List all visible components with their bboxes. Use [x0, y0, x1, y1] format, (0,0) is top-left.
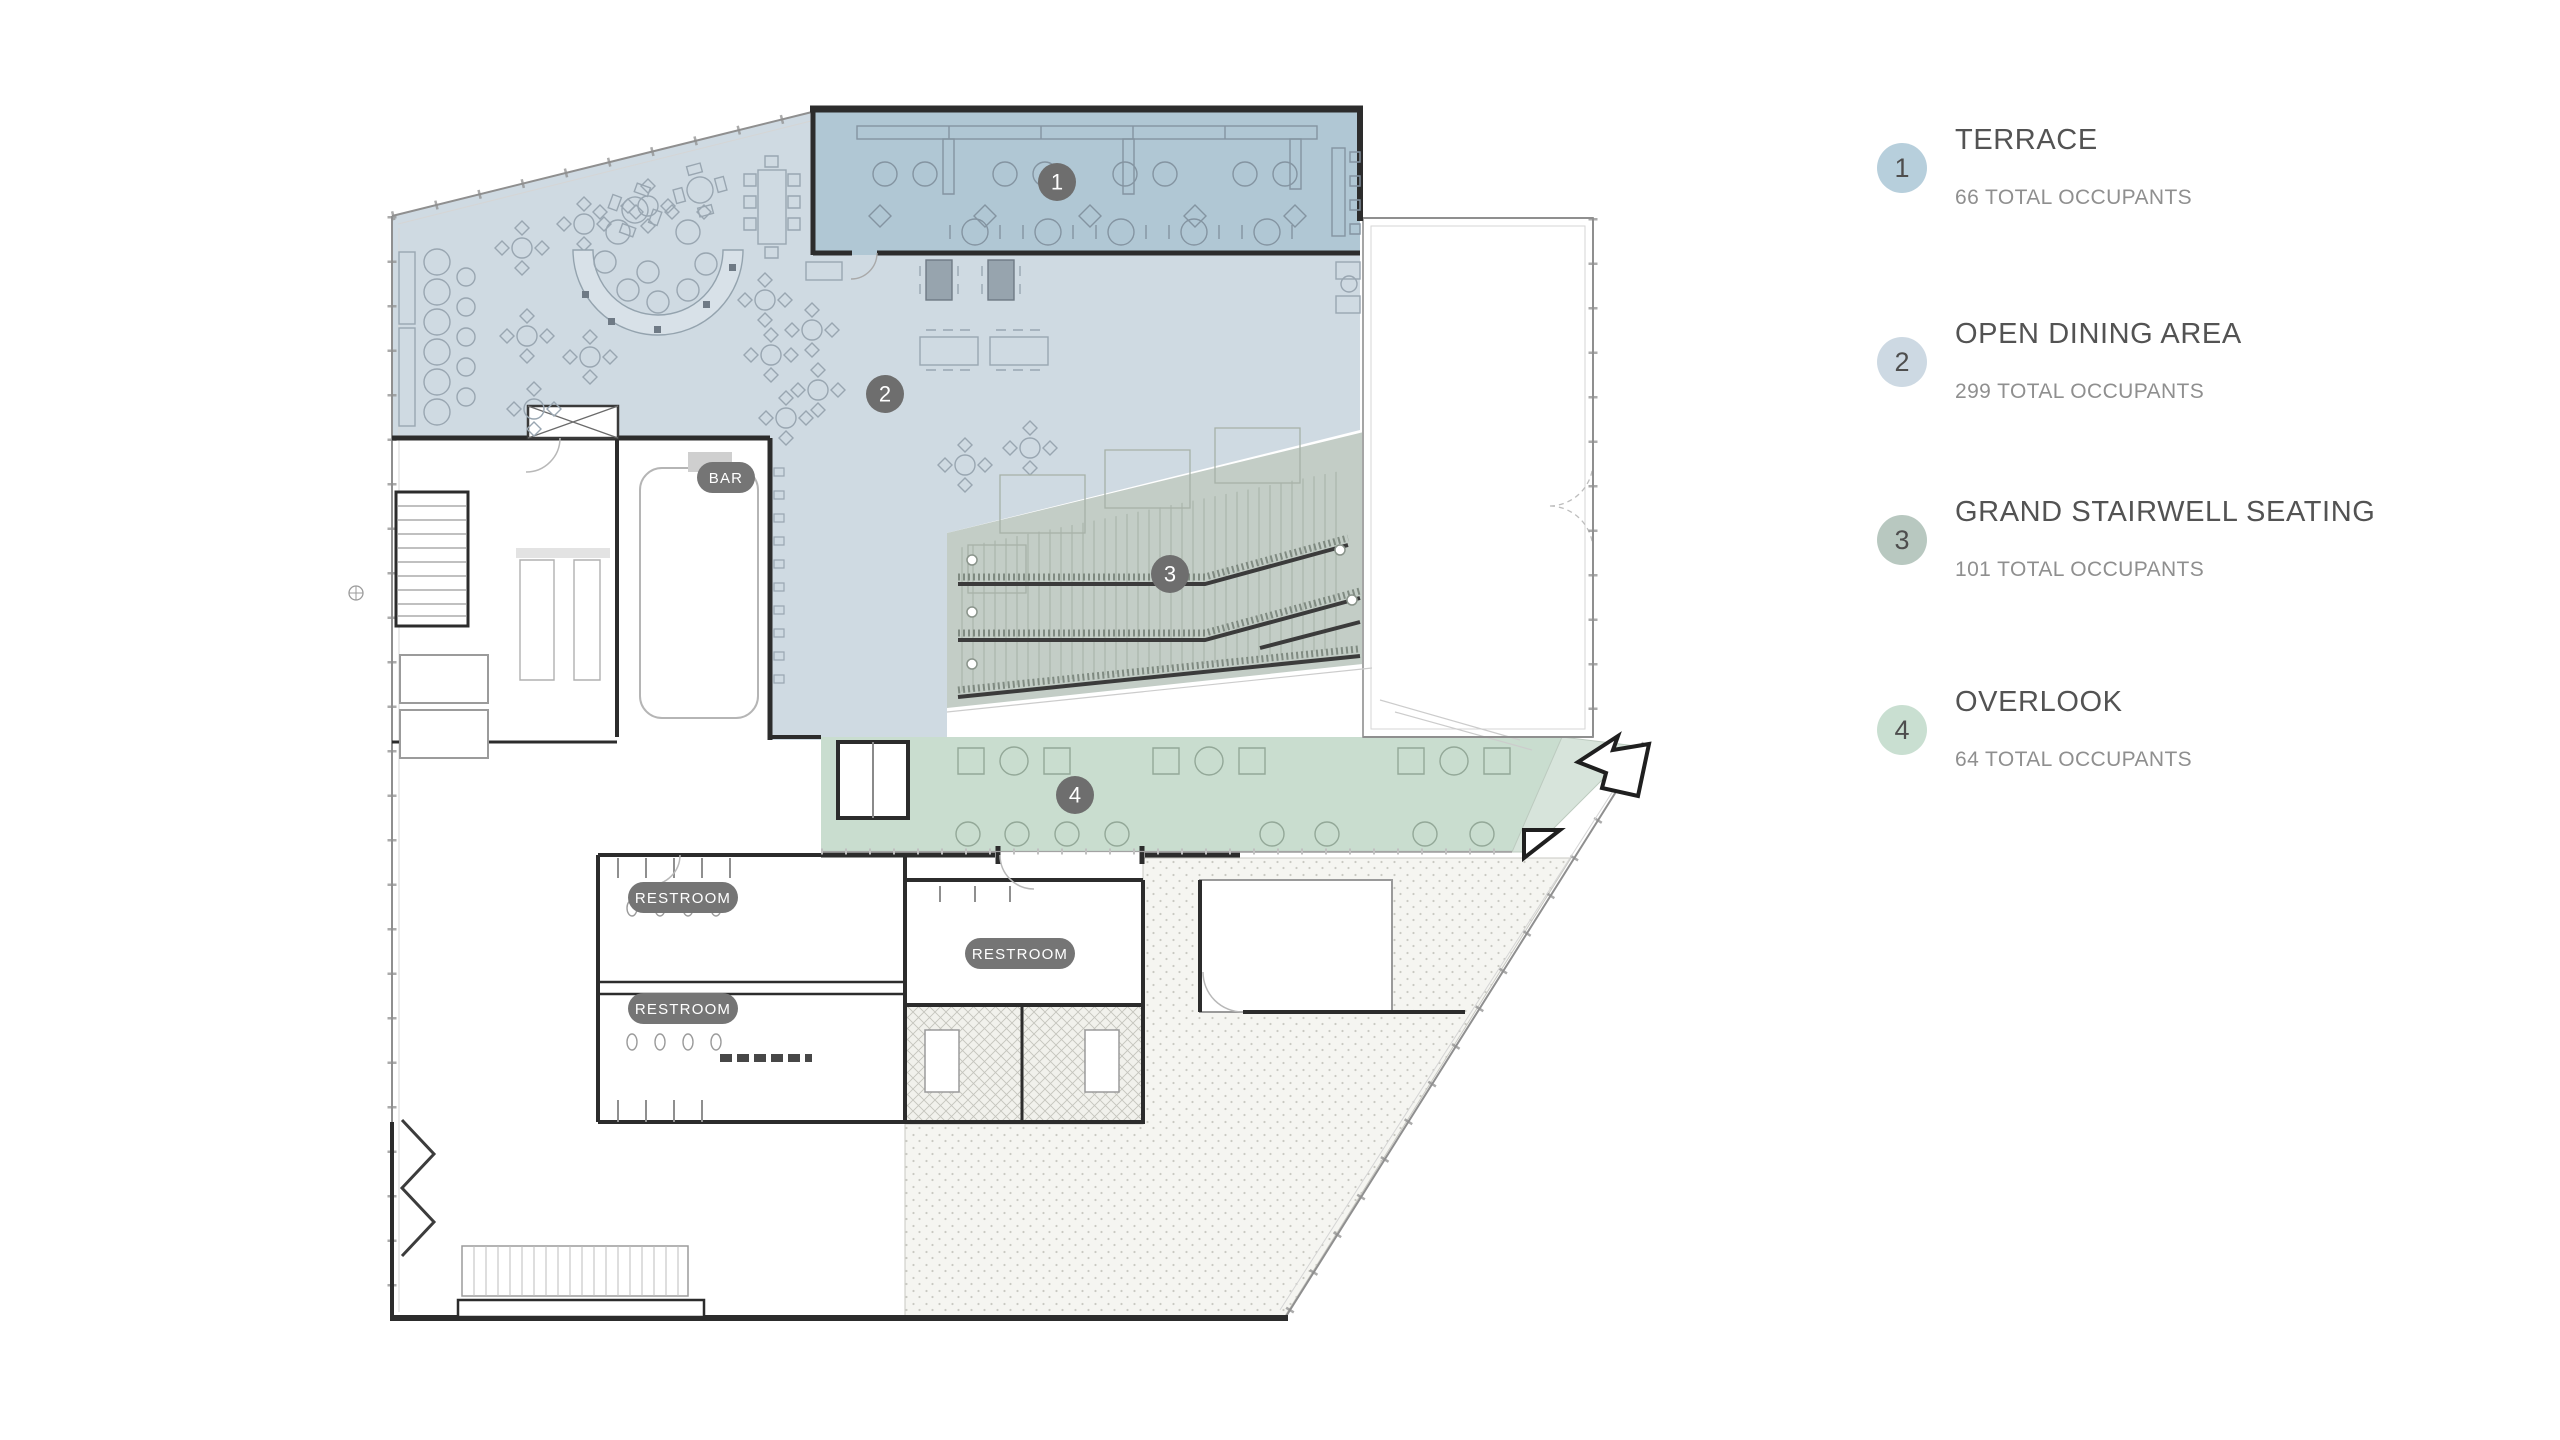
svg-text:4: 4 — [1069, 783, 1081, 808]
svg-text:BAR: BAR — [709, 470, 743, 487]
zone-badge-terrace: 1 — [1038, 163, 1076, 201]
legend-title: TERRACE — [1955, 122, 2537, 158]
legend-item-overlook: 4 OVERLOOK 64 TOTAL OCCUPANTS — [1877, 684, 2537, 772]
svg-text:3: 3 — [1894, 525, 1909, 555]
svg-text:RESTROOM: RESTROOM — [972, 946, 1068, 963]
svg-text:RESTROOM: RESTROOM — [635, 1001, 731, 1018]
legend-occupancy: 66 TOTAL OCCUPANTS — [1955, 186, 2537, 210]
legend: 1 TERRACE 66 TOTAL OCCUPANTS 2 OPEN DINI… — [1877, 0, 2537, 1440]
restroom-label-1: RESTROOM — [628, 882, 738, 913]
zone-badge-overlook: 4 — [1056, 776, 1094, 814]
legend-occupancy: 299 TOTAL OCCUPANTS — [1955, 380, 2537, 404]
svg-text:RESTROOM: RESTROOM — [635, 890, 731, 907]
svg-text:2: 2 — [1894, 347, 1909, 377]
legend-circle-4: 4 — [1877, 705, 1927, 755]
zone-terrace — [813, 109, 1360, 255]
svg-text:1: 1 — [1051, 170, 1063, 195]
legend-circle-2: 2 — [1877, 337, 1927, 387]
legend-circle-1: 1 — [1877, 143, 1927, 193]
svg-text:2: 2 — [879, 382, 891, 407]
svg-text:1: 1 — [1894, 153, 1909, 183]
restroom-label-2: RESTROOM — [628, 993, 738, 1024]
zone-badge-open-dining: 2 — [866, 375, 904, 413]
legend-circle-3: 3 — [1877, 515, 1927, 565]
legend-occupancy: 101 TOTAL OCCUPANTS — [1955, 558, 2537, 582]
legend-title: GRAND STAIRWELL SEATING — [1955, 494, 2537, 530]
legend-item-terrace: 1 TERRACE 66 TOTAL OCCUPANTS — [1877, 122, 2537, 210]
legend-title: OVERLOOK — [1955, 684, 2537, 720]
restroom-label-3: RESTROOM — [965, 938, 1075, 969]
svg-text:4: 4 — [1894, 715, 1909, 745]
legend-item-open-dining-area: 2 OPEN DINING AREA 299 TOTAL OCCUPANTS — [1877, 316, 2537, 404]
legend-title: OPEN DINING AREA — [1955, 316, 2537, 352]
bar-label: BAR — [697, 462, 755, 493]
zone-overlook — [821, 737, 1562, 852]
zone-badge-grand-stairwell: 3 — [1151, 555, 1189, 593]
legend-item-grand-stairwell-seating: 3 GRAND STAIRWELL SEATING 101 TOTAL OCCU… — [1877, 494, 2537, 582]
svg-text:3: 3 — [1164, 562, 1176, 587]
legend-occupancy: 64 TOTAL OCCUPANTS — [1955, 748, 2537, 772]
